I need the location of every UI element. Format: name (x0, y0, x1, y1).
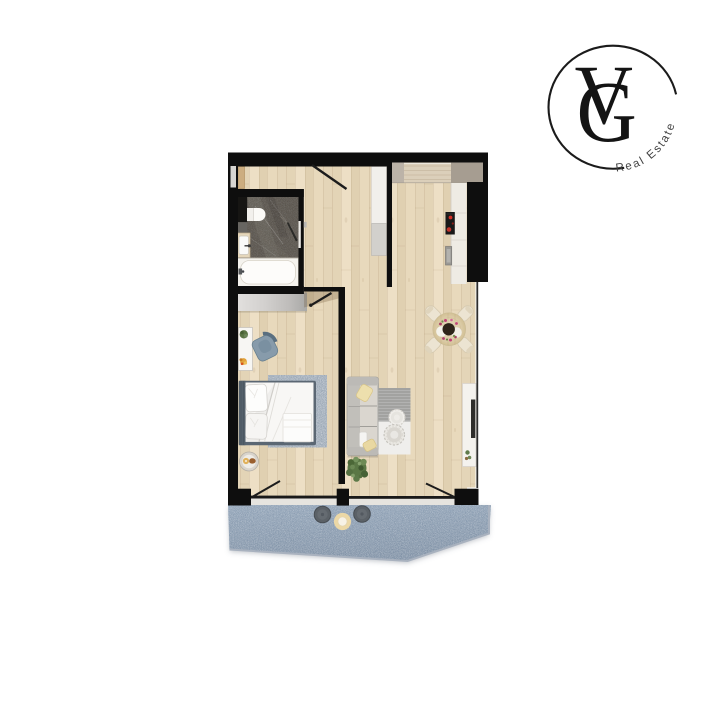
svg-text:G: G (577, 64, 637, 160)
